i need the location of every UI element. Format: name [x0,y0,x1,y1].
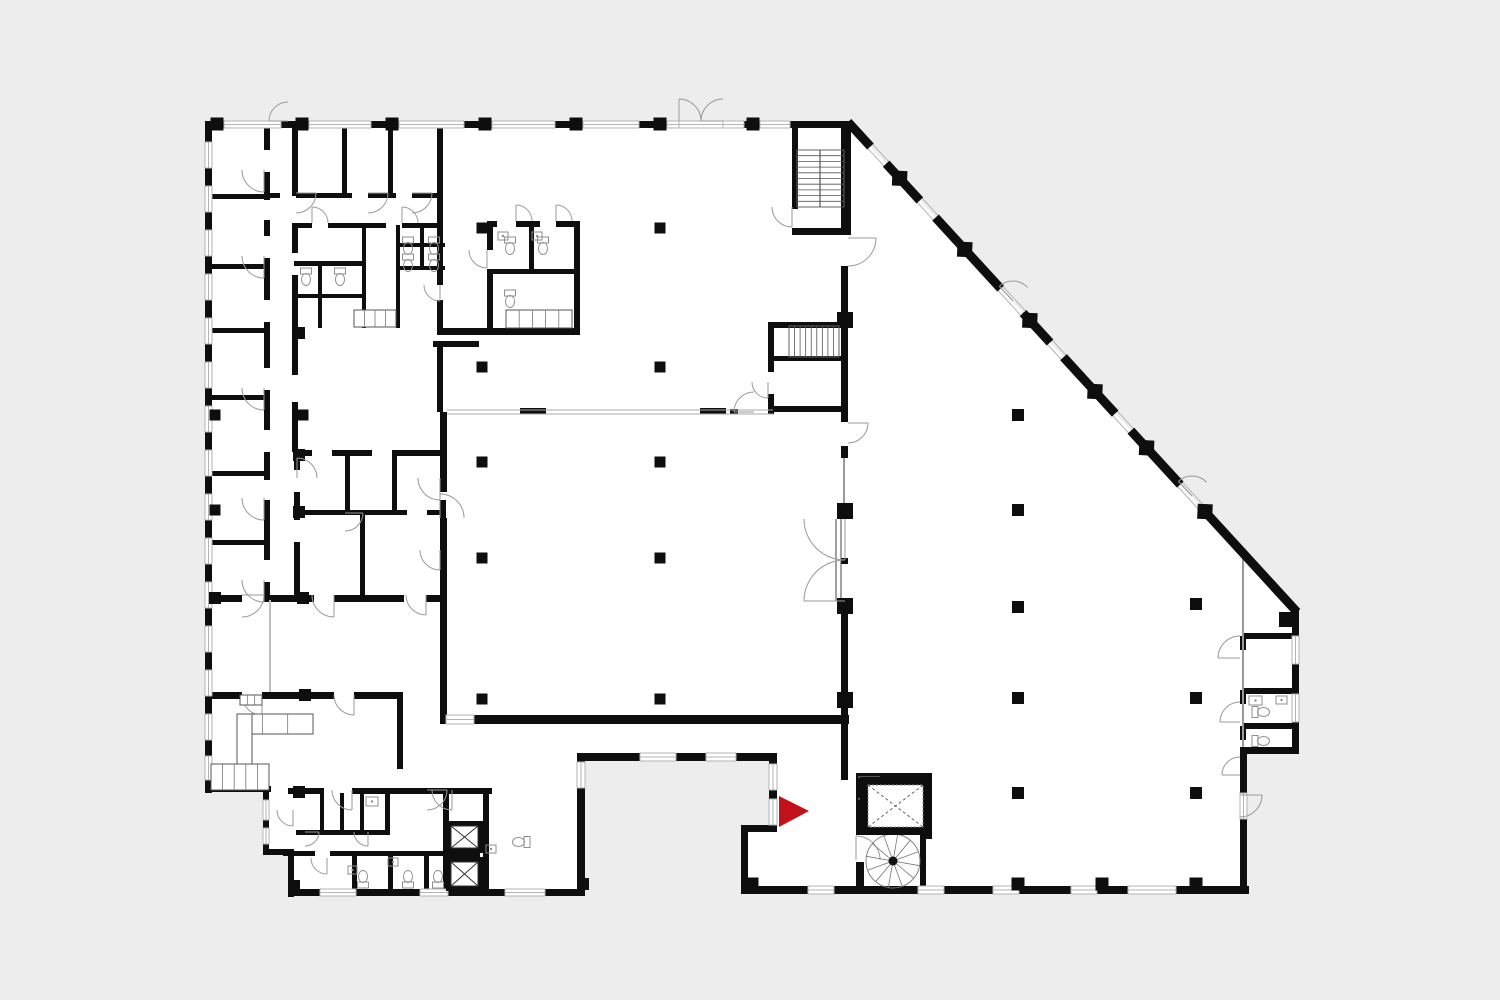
window [205,538,212,564]
wall [856,862,864,893]
wall [320,793,324,832]
wall [283,851,315,856]
window [760,121,790,128]
wall [205,264,267,269]
window [205,714,212,740]
wall [342,127,347,195]
window [205,670,212,696]
sink-drain [1280,699,1282,701]
column [747,118,760,131]
window [1292,636,1299,664]
counter-outline [506,310,572,328]
column [655,362,666,373]
column [1096,878,1109,891]
window [577,762,585,788]
wall [437,341,443,412]
column [1190,878,1203,891]
window [640,753,676,761]
wall [328,223,386,228]
window [769,764,777,790]
counter [240,695,262,705]
column [1012,601,1024,613]
wall [1240,747,1247,894]
wall [205,540,267,545]
wall [292,275,298,330]
wall [205,395,267,400]
window [505,889,545,896]
window [583,121,639,128]
wall [768,406,845,412]
column [477,553,488,564]
column [479,118,492,131]
wall [205,471,267,476]
spiral-newel [889,857,898,866]
wall [420,225,424,267]
column [477,457,488,468]
wall [1243,723,1295,729]
column [477,362,488,373]
column [655,553,666,564]
window [205,626,212,652]
wall [440,518,447,722]
window [205,142,212,168]
window [420,889,448,896]
column [1012,787,1024,799]
window [446,715,474,724]
column [293,327,305,339]
column [1012,504,1024,516]
wall [354,692,403,699]
column [1012,409,1024,421]
column [299,689,311,701]
window [205,362,212,388]
wall [483,788,489,893]
wall [205,328,267,333]
wall [440,552,446,597]
wall [577,753,777,761]
column [570,118,583,131]
wall [360,515,365,597]
counter [211,764,269,790]
sink-drain [502,235,504,237]
window [679,121,723,128]
window [309,121,371,128]
window [723,121,744,128]
wall [920,833,926,890]
column [210,410,221,421]
wall [396,225,400,328]
wall [397,692,403,769]
wall [487,221,493,250]
window [205,186,212,212]
column [837,503,853,519]
wall [841,612,848,760]
diagonal-column [1022,313,1038,329]
wall [487,269,580,274]
wall [294,261,366,266]
wall [332,450,372,456]
window [205,318,212,344]
window [706,753,736,761]
window [1128,886,1176,894]
wall [392,452,397,512]
column [577,878,589,890]
window [205,450,212,476]
column [837,598,853,614]
wall [292,121,298,196]
wall [841,326,848,412]
column [210,505,221,516]
wall [352,788,447,794]
column [209,592,221,604]
sink-drain [351,869,353,871]
column [654,118,667,131]
counter-outline [237,714,252,766]
column [477,223,488,234]
wall [700,408,726,414]
wall [841,121,851,233]
sink-drain [1254,699,1256,701]
window [1240,793,1247,819]
wall [1243,688,1295,694]
column [837,312,853,328]
counter [506,310,572,328]
counter [237,714,252,766]
wall [792,228,851,235]
column [386,118,399,131]
column [211,118,224,131]
column [293,786,305,798]
diagonal-column [1197,504,1213,520]
wall [294,294,366,298]
column [1190,598,1202,610]
column [1012,878,1025,891]
wall [529,221,534,269]
column [297,592,309,604]
diagonal-column [1087,384,1103,400]
column [1190,787,1202,799]
window [224,121,281,128]
sink-drain [536,235,538,237]
wall [262,692,334,699]
sink-drain [392,861,394,863]
elevator [446,821,483,853]
window [918,886,944,894]
column [746,878,759,891]
window [769,799,777,825]
diagonal-column [957,242,973,258]
wall [360,793,364,832]
wall [330,851,447,856]
column [837,692,853,708]
wall [340,793,344,832]
wall [388,127,393,195]
wall [440,715,849,724]
wall [1292,608,1299,754]
wall [841,266,848,318]
column [655,223,666,234]
window [205,274,212,300]
wall [368,193,396,198]
wall [437,328,580,335]
wall [424,856,429,893]
wall [427,510,445,515]
elevator [446,857,483,891]
diagonal-column [1139,440,1155,456]
window [399,121,464,128]
window [492,121,555,128]
window [1071,886,1097,894]
sink-drain [490,848,492,850]
window [667,121,679,128]
window [263,800,269,820]
floor-plan-svg [0,0,1500,1000]
sink-drain [371,800,373,802]
wall [392,450,445,456]
wall [294,542,300,597]
window [320,889,356,896]
wall [440,450,446,476]
wall [264,220,270,236]
floor-plan-page [0,0,1500,1000]
window [1292,694,1299,722]
wall [334,595,404,602]
column [298,410,309,421]
wall [296,193,352,198]
wall [437,300,443,330]
column [293,506,305,518]
window [263,828,269,844]
column [296,118,309,131]
wall [841,446,848,458]
wall [412,193,440,198]
wall [345,452,350,512]
wall [516,221,540,227]
wall [841,412,848,422]
wall [385,793,390,832]
wall [205,194,267,199]
counter-outline [240,695,262,705]
wall [267,193,280,198]
counter [354,310,396,327]
wall [1243,633,1295,639]
wall [487,270,493,330]
column [1012,692,1024,704]
window [205,230,212,256]
column [1190,692,1202,704]
diagonal-column [892,171,908,187]
column [477,694,488,705]
wall [264,500,270,560]
wall [1240,747,1299,754]
counter-outline [211,764,269,790]
window [808,886,834,894]
elevator [860,777,931,835]
wall [520,408,546,414]
column [655,694,666,705]
wall [294,223,312,228]
wall [574,221,580,330]
wall [292,402,298,452]
wall [768,322,774,372]
column [288,880,300,892]
column [655,457,666,468]
wall [841,760,848,780]
